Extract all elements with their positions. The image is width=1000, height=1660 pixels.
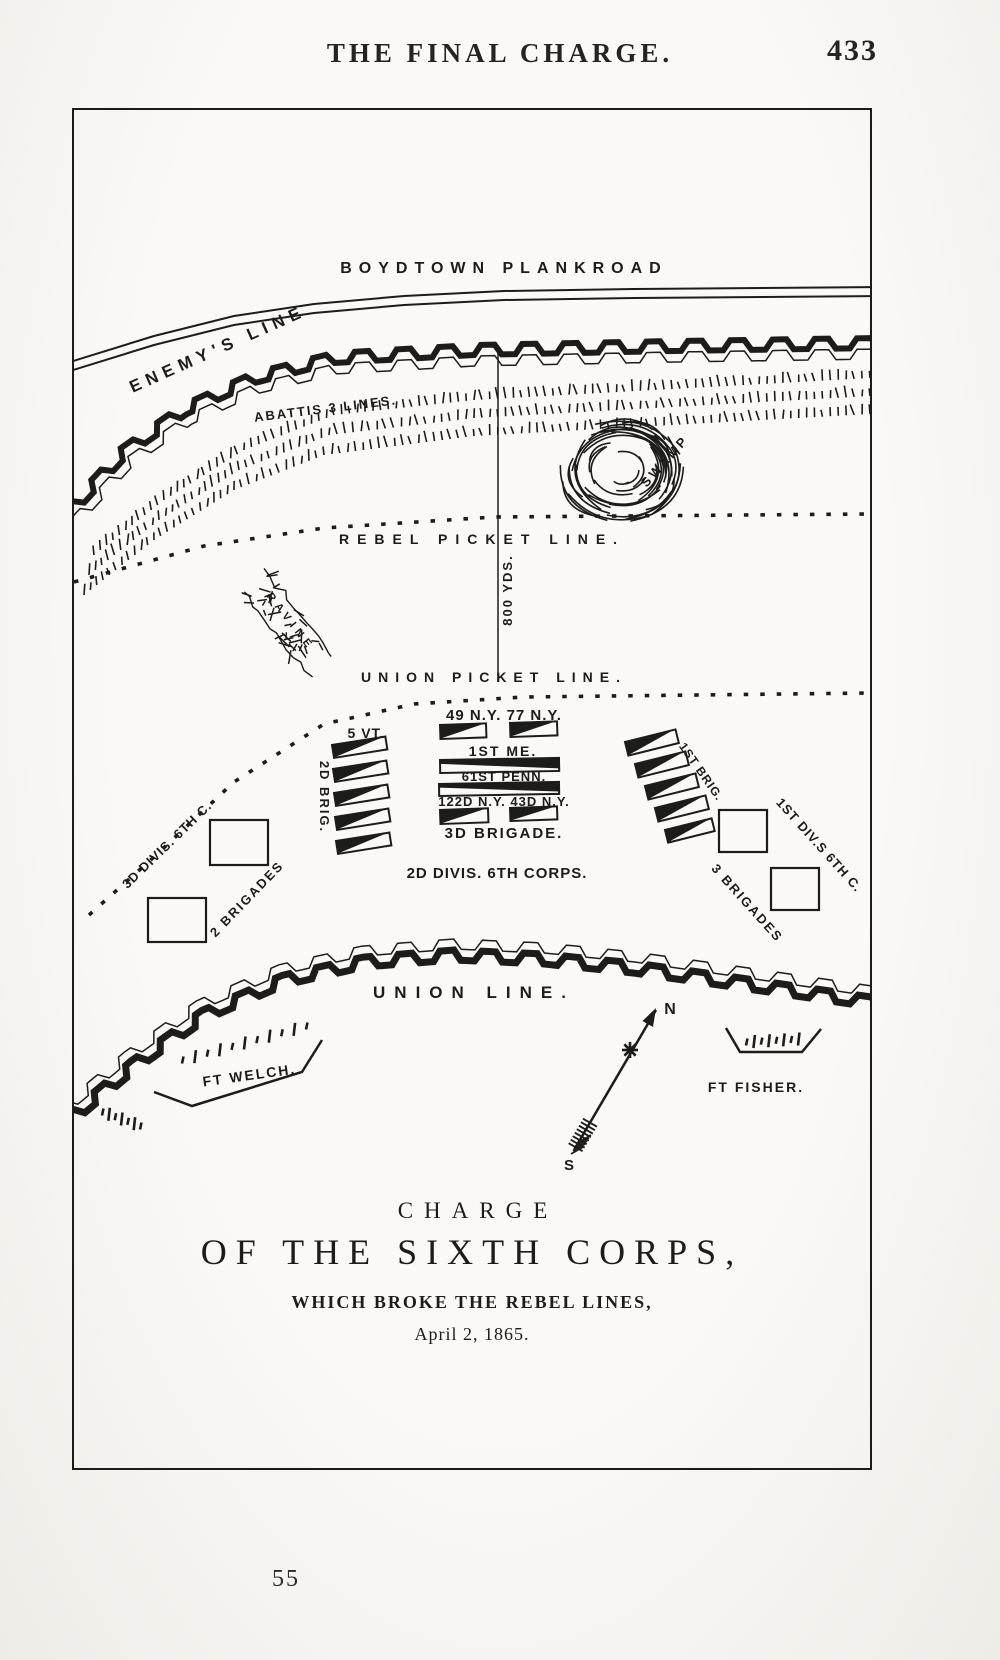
abattis-hatching xyxy=(84,369,870,595)
rebel-picket-label: REBEL PICKET LINE. xyxy=(339,531,625,547)
union-picket-label: UNION PICKET LINE. xyxy=(361,669,627,685)
unit-1st-brig-label: 1ST BRIG. xyxy=(676,740,726,803)
unit-5-vt-label: 5 VT. xyxy=(348,725,385,741)
compass-arrow xyxy=(569,1008,656,1154)
unit-122d-43d-ny-label: 122D N.Y. 43D N.Y. xyxy=(438,794,569,809)
unit-2d-brig-label: 2D BRIG. xyxy=(317,761,332,833)
union-line-label: UNION LINE. xyxy=(373,983,575,1002)
unit-2-brigades-label: 2 BRIGADES xyxy=(207,858,287,940)
distance-label: 800 YDS. xyxy=(500,554,515,625)
map-title-line1: CHARGE xyxy=(398,1198,559,1223)
fort-fisher-label: FT FISHER. xyxy=(708,1079,804,1095)
map-title-line2: OF THE SIXTH CORPS, xyxy=(201,1232,743,1272)
road-label: BOYDTOWN PLANKROAD xyxy=(340,260,667,277)
unit-3d-divis-6th-c-label: 3D DIVIS. 6TH C. xyxy=(119,798,215,891)
unit-49ny-77ny-label: 49 N.Y. 77 N.Y. xyxy=(446,707,562,724)
fort-fisher-symbol xyxy=(726,1028,821,1052)
fort-welch-label: FT WELCH. xyxy=(202,1061,298,1090)
unit-3-brigades-label: 3 BRIGADES xyxy=(708,861,786,945)
unit-2d-divis-6th-corps-label: 2D DIVIS. 6TH CORPS. xyxy=(407,865,588,882)
unit-3d-brigade-label: 3D BRIGADE. xyxy=(445,825,564,842)
page-number-top: 433 xyxy=(827,34,878,68)
compass-south-label: S xyxy=(564,1157,574,1174)
abattis-label: ABATTIS 3 LINES. xyxy=(253,392,397,424)
map-frame: BOYDTOWN PLANKROAD ENEMY'S LINE ABATTIS … xyxy=(72,108,872,1470)
map-title-line3: WHICH BROKE THE REBEL LINES, xyxy=(291,1292,652,1312)
running-head: THE FINAL CHARGE. 433 xyxy=(0,38,1000,78)
unit-1st-me-label: 1ST ME. xyxy=(469,743,537,759)
page-number-bottom: 55 xyxy=(272,1566,300,1593)
battle-map: BOYDTOWN PLANKROAD ENEMY'S LINE ABATTIS … xyxy=(74,110,870,1468)
rebel-picket-dotted-line xyxy=(74,514,870,582)
enemy-line-label: ENEMY'S LINE xyxy=(127,301,309,396)
map-title-line4: April 2, 1865. xyxy=(415,1324,530,1344)
ravine-label: RAVINE xyxy=(264,591,317,654)
compass-north-label: N xyxy=(664,1001,676,1018)
unit-61st-penn-label: 61ST PENN. xyxy=(462,769,546,784)
